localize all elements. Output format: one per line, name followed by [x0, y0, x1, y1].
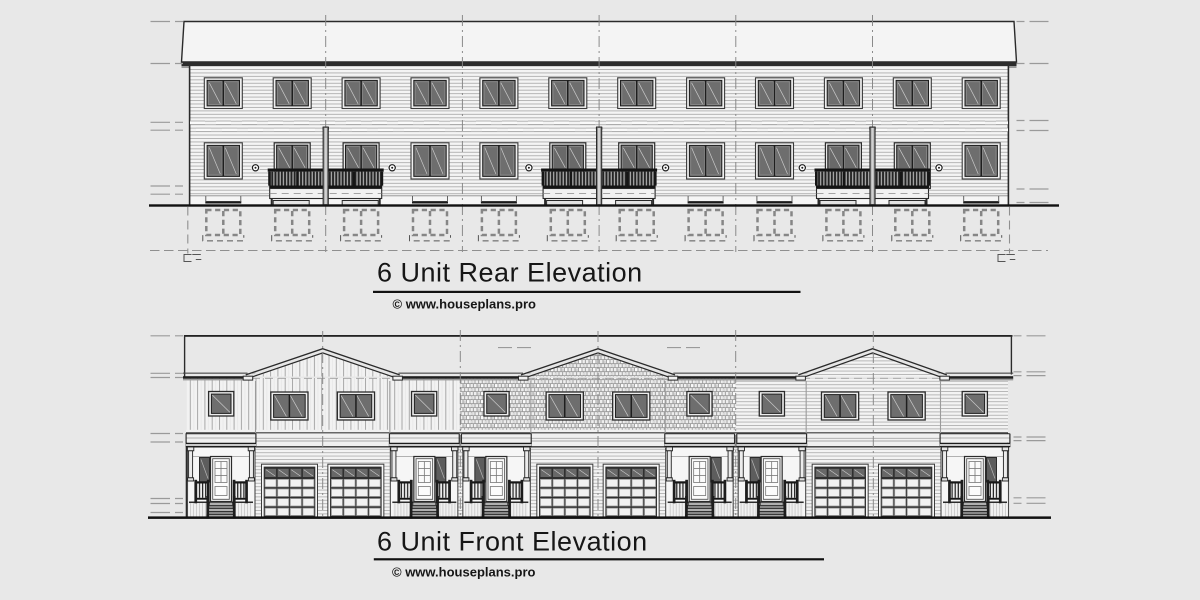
- svg-text:6 Unit Rear Elevation: 6 Unit Rear Elevation: [377, 258, 643, 288]
- svg-text:6 Unit Front Elevation: 6 Unit Front Elevation: [377, 527, 648, 557]
- svg-text:© www.houseplans.pro: © www.houseplans.pro: [392, 565, 536, 580]
- svg-text:© www.houseplans.pro: © www.houseplans.pro: [393, 297, 537, 312]
